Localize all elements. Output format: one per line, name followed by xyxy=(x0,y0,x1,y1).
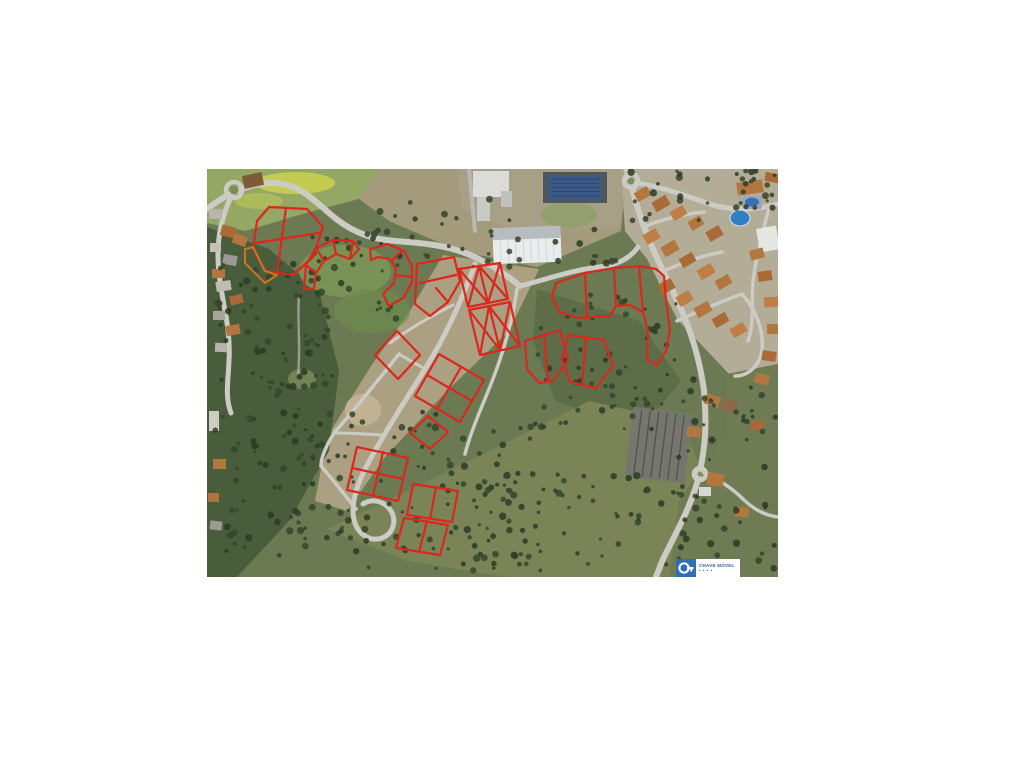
tree xyxy=(559,421,563,425)
tree xyxy=(236,442,240,446)
tree xyxy=(350,262,355,267)
tree xyxy=(361,526,368,533)
tree xyxy=(308,278,314,284)
tree xyxy=(349,411,355,417)
tree xyxy=(245,534,252,541)
tree xyxy=(447,547,450,550)
tree xyxy=(487,539,491,543)
tree xyxy=(658,388,663,393)
tree xyxy=(708,458,711,461)
tree xyxy=(511,552,518,559)
tree xyxy=(578,347,583,352)
house xyxy=(208,493,219,502)
tree xyxy=(251,443,257,449)
tree xyxy=(239,283,243,287)
tree xyxy=(589,305,594,310)
tree xyxy=(624,365,627,368)
tree xyxy=(255,316,260,321)
terrain-patch xyxy=(541,202,597,228)
tree xyxy=(224,338,229,343)
tree xyxy=(697,218,701,222)
tree xyxy=(533,422,538,427)
house xyxy=(215,280,231,292)
tree xyxy=(282,434,286,438)
tree xyxy=(280,409,287,416)
roundabout-center xyxy=(628,178,635,185)
tree xyxy=(475,505,479,509)
warehouse xyxy=(625,407,693,484)
tree xyxy=(702,423,705,426)
tree xyxy=(393,315,400,322)
tree xyxy=(225,308,232,315)
tree xyxy=(347,509,350,512)
tree xyxy=(702,395,708,401)
house xyxy=(210,243,221,252)
tree xyxy=(733,204,739,210)
tree xyxy=(590,368,594,372)
tree xyxy=(614,404,617,407)
tree xyxy=(630,401,636,407)
tree xyxy=(357,240,362,245)
tree xyxy=(268,381,271,384)
aerial-photo: CHAVE MÓVEL • • • • xyxy=(207,169,778,577)
tree xyxy=(623,311,629,317)
tree xyxy=(281,351,285,355)
tree xyxy=(683,536,690,543)
tree xyxy=(420,410,425,415)
tree xyxy=(519,552,523,556)
tree xyxy=(773,174,776,177)
tree xyxy=(539,550,543,554)
tree xyxy=(322,381,329,388)
tree xyxy=(224,549,228,553)
tree xyxy=(290,261,297,268)
tree xyxy=(365,231,371,237)
tree xyxy=(735,172,739,176)
tree xyxy=(537,501,542,506)
tree xyxy=(412,216,417,221)
tree xyxy=(492,551,499,558)
tree xyxy=(592,254,595,257)
tree xyxy=(411,506,414,509)
tree xyxy=(680,484,685,489)
tree xyxy=(464,526,471,533)
tree xyxy=(660,402,663,405)
tree xyxy=(338,280,344,286)
tree xyxy=(590,260,596,266)
tree xyxy=(287,430,293,436)
house xyxy=(764,297,778,308)
tree xyxy=(422,466,426,470)
tree xyxy=(610,405,614,409)
tree xyxy=(575,408,580,413)
tree xyxy=(519,426,523,430)
tree xyxy=(629,512,634,517)
tree xyxy=(401,510,404,513)
tree xyxy=(697,517,703,523)
tree xyxy=(705,176,710,181)
house xyxy=(699,487,711,496)
tree xyxy=(635,519,642,526)
tree xyxy=(352,480,355,483)
tree xyxy=(650,326,657,333)
house xyxy=(213,311,225,320)
tree xyxy=(513,480,517,484)
roundabout-center xyxy=(230,186,239,195)
tree xyxy=(644,308,647,311)
tree xyxy=(758,392,765,399)
tree xyxy=(743,204,748,209)
tree xyxy=(739,201,743,205)
tree xyxy=(287,323,293,329)
tree xyxy=(507,249,513,255)
solar-panels xyxy=(549,175,601,200)
tree xyxy=(449,530,453,534)
tree xyxy=(313,343,316,346)
tree xyxy=(517,562,522,567)
tree xyxy=(360,254,364,258)
tree xyxy=(755,557,762,564)
terrain-patch xyxy=(334,289,410,333)
tree xyxy=(482,479,487,484)
tree xyxy=(470,567,476,573)
tree xyxy=(348,535,353,540)
tree xyxy=(343,455,347,459)
tree xyxy=(229,507,235,513)
house xyxy=(213,459,226,469)
tree xyxy=(772,543,777,548)
tree xyxy=(265,338,272,345)
tree xyxy=(338,528,344,534)
tree xyxy=(267,512,274,519)
tree xyxy=(524,562,529,567)
tree xyxy=(461,561,466,566)
tree xyxy=(280,382,285,387)
tree xyxy=(626,475,632,481)
tree xyxy=(322,307,329,314)
tree xyxy=(503,474,508,479)
tree xyxy=(743,181,749,187)
tree xyxy=(473,555,480,562)
tree xyxy=(318,289,325,296)
tree xyxy=(219,323,223,327)
tree xyxy=(482,492,487,497)
tree xyxy=(255,345,259,349)
roundabout-center xyxy=(698,472,703,477)
tree xyxy=(495,483,499,487)
tree xyxy=(651,407,654,410)
tree xyxy=(588,292,593,297)
tree xyxy=(440,222,444,226)
tree xyxy=(476,483,483,490)
tree xyxy=(447,458,451,462)
tree xyxy=(762,502,768,508)
tree xyxy=(491,561,497,567)
tree xyxy=(535,352,540,357)
tree xyxy=(255,348,262,355)
tree xyxy=(649,427,654,432)
tree xyxy=(322,334,328,340)
tree xyxy=(384,229,391,236)
tree xyxy=(417,465,420,468)
tree xyxy=(296,520,300,524)
tree xyxy=(364,514,370,520)
tree xyxy=(630,413,636,419)
tree xyxy=(317,421,323,427)
tree xyxy=(686,449,690,453)
tree xyxy=(309,504,316,511)
tree xyxy=(599,537,602,540)
tree xyxy=(489,511,492,514)
tree xyxy=(221,415,225,419)
tree xyxy=(478,523,481,526)
warehouse xyxy=(492,226,561,264)
tree xyxy=(431,451,435,455)
tree xyxy=(634,397,638,401)
tree xyxy=(310,481,315,486)
tree xyxy=(325,236,330,241)
tree xyxy=(599,407,606,414)
tree xyxy=(760,551,764,555)
tree xyxy=(733,409,738,414)
tree xyxy=(317,259,321,263)
tree xyxy=(623,427,626,430)
tree xyxy=(262,462,268,468)
tree xyxy=(630,218,636,224)
tree xyxy=(447,462,454,469)
tree xyxy=(386,307,391,312)
tree xyxy=(310,382,317,389)
tree xyxy=(433,412,438,417)
tree xyxy=(577,495,581,499)
tree xyxy=(709,399,714,404)
tree xyxy=(745,438,749,442)
tree xyxy=(600,554,604,558)
tree xyxy=(297,527,304,534)
tree xyxy=(224,523,231,530)
watermark-logo: CHAVE MÓVEL • • • • xyxy=(676,559,740,577)
tree xyxy=(527,424,533,430)
tree xyxy=(310,338,314,342)
tree xyxy=(301,368,308,375)
tree xyxy=(379,306,382,309)
tree xyxy=(542,404,547,409)
tree xyxy=(515,236,521,242)
tree xyxy=(750,409,754,413)
road xyxy=(298,295,299,375)
tree xyxy=(314,374,318,378)
tree xyxy=(417,533,421,537)
tree xyxy=(591,498,596,503)
tree xyxy=(490,234,494,238)
tree xyxy=(249,304,253,308)
page-background: CHAVE MÓVEL • • • • xyxy=(0,0,1024,768)
tree xyxy=(268,386,272,390)
tree xyxy=(690,376,697,383)
tree xyxy=(536,543,539,546)
tree xyxy=(243,277,250,284)
tree xyxy=(277,553,282,558)
tree xyxy=(441,211,448,218)
tree xyxy=(499,513,506,520)
tree xyxy=(252,287,258,293)
tree xyxy=(693,494,698,499)
tree xyxy=(701,498,707,504)
tree xyxy=(292,508,298,514)
industrial-building xyxy=(501,191,512,207)
tree xyxy=(233,478,239,484)
tree xyxy=(492,566,496,570)
tree xyxy=(277,484,283,490)
tree xyxy=(245,329,252,336)
tree xyxy=(610,393,616,399)
tree xyxy=(523,538,528,543)
tree xyxy=(498,454,501,457)
tree xyxy=(393,214,397,218)
tree xyxy=(468,535,472,539)
tree xyxy=(297,408,300,411)
tree xyxy=(752,205,757,210)
tree xyxy=(311,235,315,239)
tree xyxy=(537,511,540,514)
tree xyxy=(213,428,218,433)
tree xyxy=(461,463,468,470)
tree xyxy=(603,357,608,362)
tree xyxy=(611,473,617,479)
tree xyxy=(615,514,619,518)
tree xyxy=(555,490,562,497)
tree xyxy=(714,552,720,558)
tree xyxy=(677,193,683,199)
tree xyxy=(576,240,583,247)
tree xyxy=(486,196,493,203)
tree xyxy=(324,535,330,541)
tree xyxy=(316,344,319,347)
tree xyxy=(247,415,254,422)
tree xyxy=(446,502,450,506)
tree xyxy=(591,227,597,233)
tree xyxy=(508,218,512,222)
tree xyxy=(489,229,494,234)
tree xyxy=(773,415,778,420)
tree xyxy=(664,562,668,566)
tree xyxy=(284,357,289,362)
tree xyxy=(770,565,777,572)
tree xyxy=(387,502,392,507)
tree xyxy=(760,429,766,435)
tree xyxy=(336,475,343,482)
tree xyxy=(454,216,459,221)
tree xyxy=(563,420,568,425)
tree xyxy=(487,252,491,256)
tree xyxy=(505,499,512,506)
tree xyxy=(714,513,719,518)
tree xyxy=(526,554,532,560)
tree xyxy=(766,199,769,202)
watermark-text-box: CHAVE MÓVEL • • • • xyxy=(696,559,740,577)
tree xyxy=(481,554,488,561)
house xyxy=(210,520,223,530)
tree xyxy=(321,373,324,376)
tree xyxy=(371,231,378,238)
tree xyxy=(381,269,384,272)
tree xyxy=(749,386,753,390)
tree xyxy=(562,531,566,535)
tree xyxy=(709,436,716,443)
tree xyxy=(517,257,523,263)
tree xyxy=(769,205,775,211)
swimming-pool xyxy=(730,210,750,226)
tree xyxy=(603,260,610,267)
tree xyxy=(377,208,384,215)
tree xyxy=(503,483,506,486)
tree xyxy=(425,254,431,260)
tree xyxy=(280,465,287,472)
tree xyxy=(318,303,321,306)
tree xyxy=(222,263,226,267)
tree xyxy=(589,382,593,386)
tree xyxy=(427,423,432,428)
tree xyxy=(301,461,306,466)
tree xyxy=(741,189,746,194)
tree xyxy=(674,302,677,305)
tree xyxy=(650,189,657,196)
key-icon xyxy=(676,559,696,577)
tree xyxy=(345,517,352,524)
tree xyxy=(472,498,476,502)
tree xyxy=(360,419,366,425)
tree xyxy=(586,562,590,566)
tree xyxy=(691,418,698,425)
tree xyxy=(687,388,694,395)
tree xyxy=(325,504,331,510)
tree xyxy=(520,528,525,533)
house xyxy=(212,269,225,278)
tree xyxy=(678,492,684,498)
tree xyxy=(673,358,676,361)
tree xyxy=(671,490,676,495)
tree xyxy=(644,401,651,408)
tree xyxy=(494,461,500,467)
tree xyxy=(318,441,325,448)
tree xyxy=(292,413,298,419)
tree xyxy=(633,199,637,203)
tree xyxy=(576,366,581,371)
tree xyxy=(501,497,506,502)
tree xyxy=(303,537,307,541)
tree xyxy=(542,425,546,429)
tree xyxy=(296,281,299,284)
tree xyxy=(396,263,400,267)
tree xyxy=(706,201,710,205)
tree xyxy=(634,386,637,389)
tree xyxy=(349,424,354,429)
tree xyxy=(302,543,309,550)
tree xyxy=(613,258,619,264)
tree xyxy=(353,548,359,554)
tree xyxy=(302,482,306,486)
tree xyxy=(733,540,740,547)
tree xyxy=(472,543,478,549)
house xyxy=(209,209,222,219)
tree xyxy=(266,286,272,292)
tree xyxy=(292,438,299,445)
tree xyxy=(761,464,768,471)
tree xyxy=(666,373,670,377)
tree xyxy=(707,540,714,547)
tree xyxy=(460,247,464,251)
tree xyxy=(616,369,623,376)
